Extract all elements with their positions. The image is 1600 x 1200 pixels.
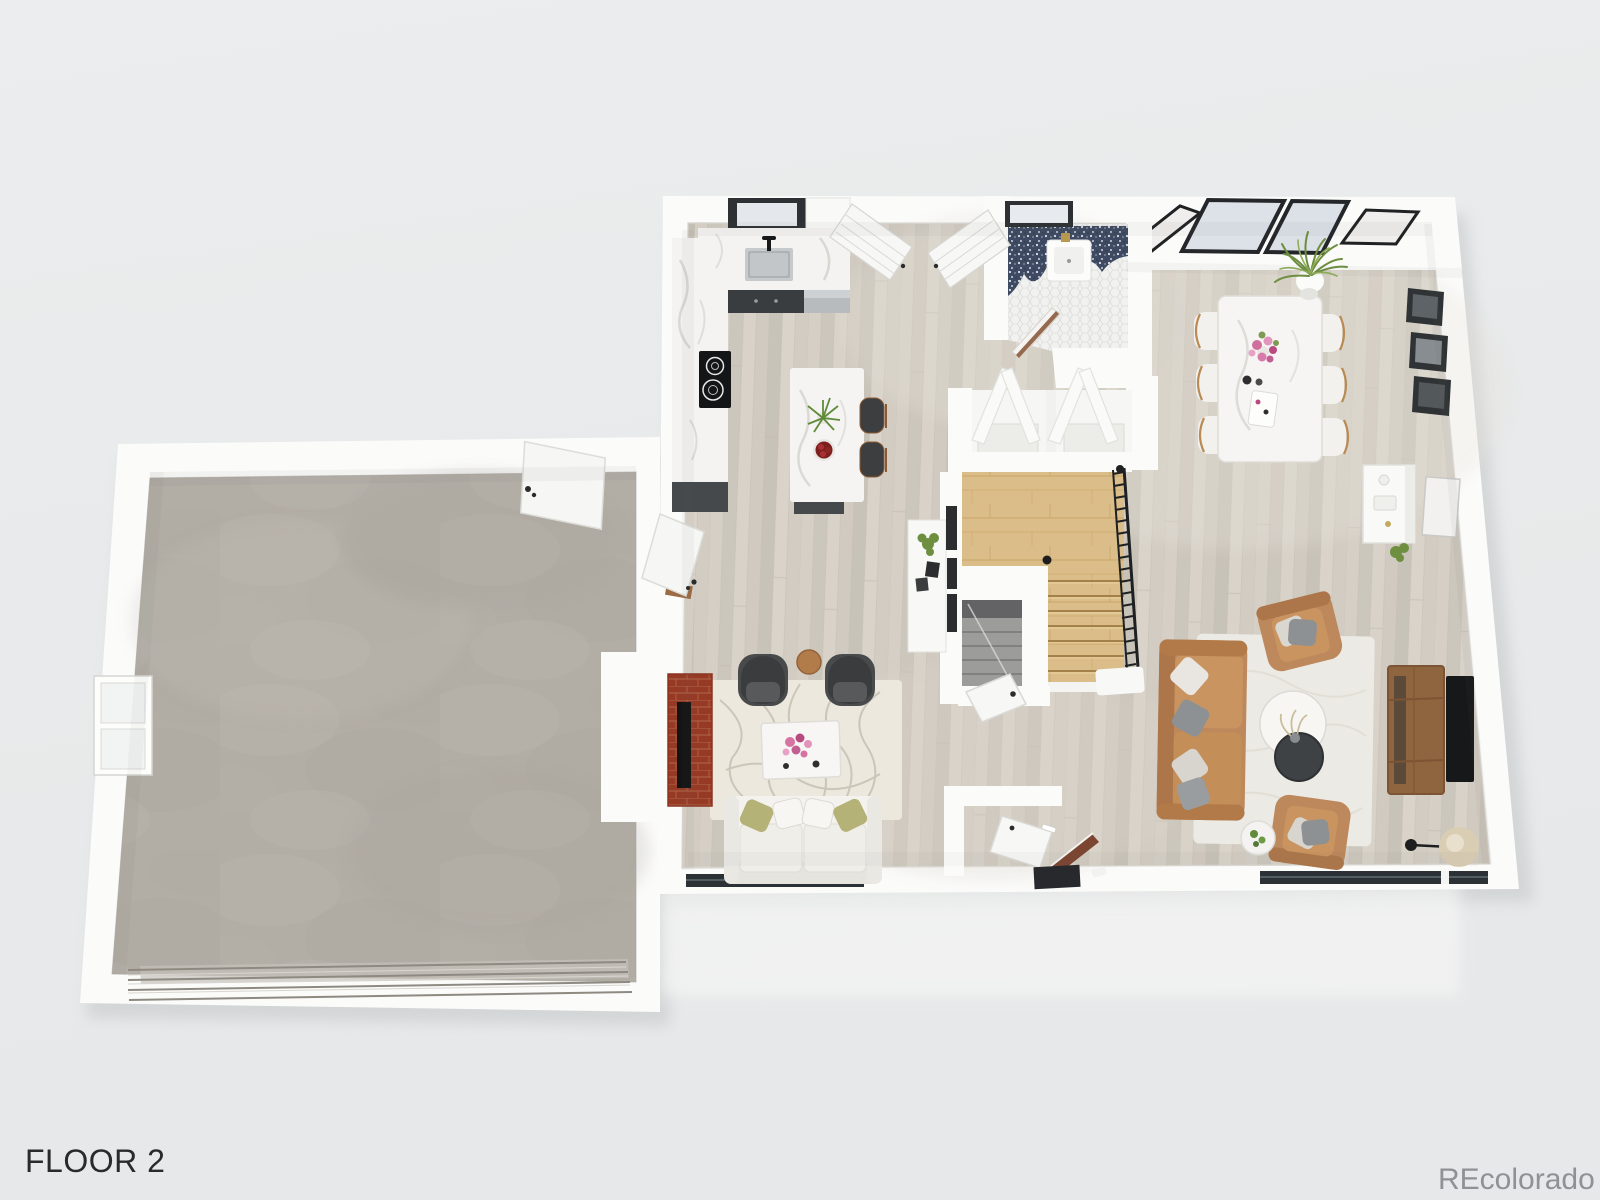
- svg-text:FLOOR 2: FLOOR 2: [25, 1143, 165, 1179]
- svg-text:REcolorado: REcolorado: [1438, 1163, 1595, 1196]
